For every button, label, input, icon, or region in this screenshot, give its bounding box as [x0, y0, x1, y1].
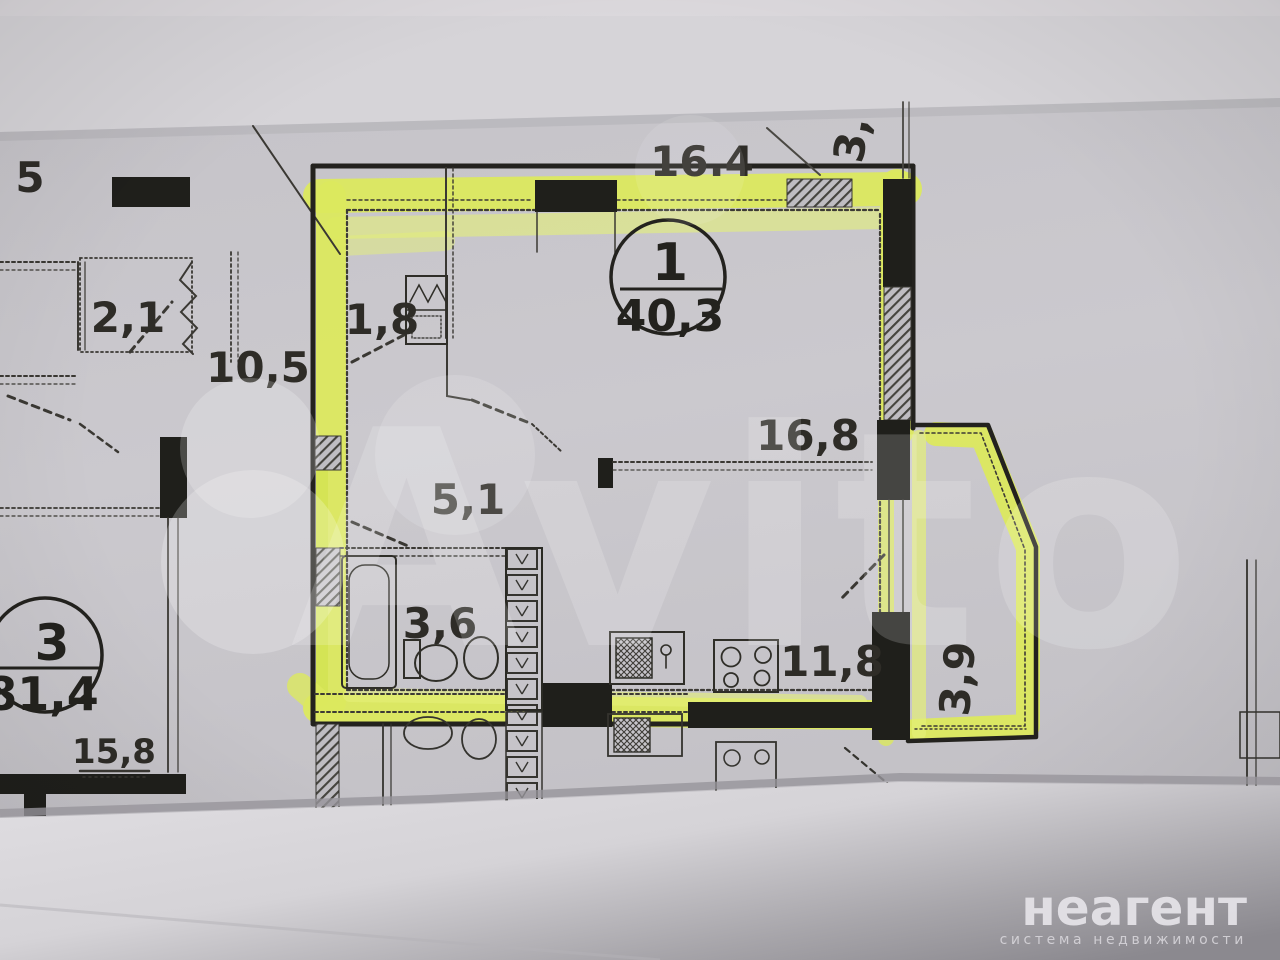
logo-subtitle: система недвижимости	[1000, 932, 1247, 948]
floorplan-photo: 5 16.4 3, 2,1 10,5 1,8 5,1 3,6 16,8 11,8…	[0, 0, 1280, 960]
floorplan-svg: 5 16.4 3, 2,1 10,5 1,8 5,1 3,6 16,8 11,8…	[0, 0, 1280, 960]
logo-title: неагент	[1021, 879, 1247, 937]
logo: неагент система недвижимости	[1000, 879, 1247, 948]
